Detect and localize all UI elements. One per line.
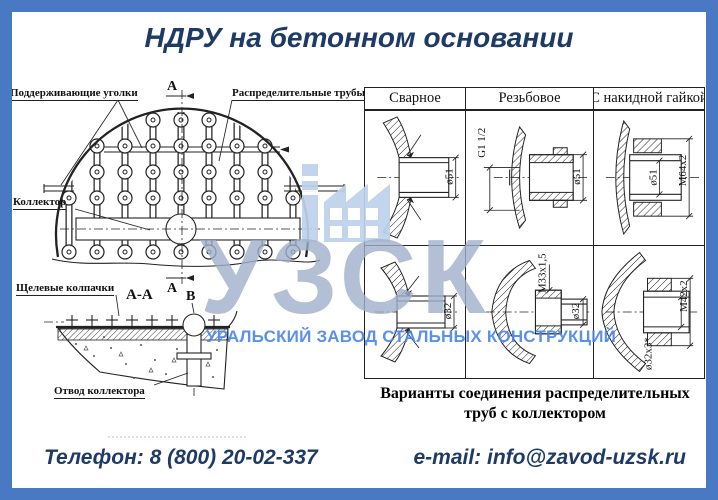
dim-label: M42x2	[678, 280, 690, 311]
union-nut-connection-sketch: ø32x3* M42x2	[594, 246, 704, 378]
base-break-line	[52, 259, 320, 266]
catalog-page: НДРУ на бетонном основании	[0, 0, 718, 500]
phone-number: Телефон: 8 (800) 20-02-337	[44, 446, 318, 470]
threaded-connection-sketch: M33x1,5 ø32	[466, 246, 593, 378]
detail-marker-b: В	[186, 289, 195, 305]
table-header-welded: Сварное	[365, 88, 465, 111]
label-collector-outlet: Отвод коллектора	[54, 385, 145, 399]
dim-label: G1 1/2	[476, 128, 488, 158]
label-supporting-angles: Поддерживающие уголки	[10, 87, 138, 101]
dim-label: ø51	[647, 169, 659, 185]
label-distribution-pipes: Распределительные трубы	[232, 87, 365, 101]
assembly-drawing	[14, 82, 354, 427]
section-marker-a-top: А	[167, 79, 177, 95]
welded-connection-sketch: ø51	[365, 111, 465, 245]
cell-threaded-51: G1 1/2 ø51	[465, 111, 593, 246]
table-caption: Варианты соединения распределительных тр…	[366, 384, 704, 424]
dim-label: ø32	[570, 303, 582, 319]
label-slot-caps: Щелевые колпачки	[16, 282, 114, 296]
table-header-threaded: Резьбовое	[465, 88, 593, 111]
dim-label: ø32x3*	[642, 337, 654, 370]
faint-line-artifact	[108, 436, 246, 438]
dim-label: M64x2	[677, 155, 689, 186]
dim-label: ø51	[444, 168, 456, 184]
cell-welded-32: ø32	[365, 246, 465, 378]
section-aa-title: А-А	[126, 287, 153, 304]
union-nut-connection-sketch: ø51 M64x2	[594, 111, 704, 245]
email-address: e-mail: info@zavod-uzsk.ru	[413, 446, 686, 470]
dim-label: ø51	[571, 168, 583, 184]
dim-label: M33x1,5	[536, 253, 548, 293]
section-aa-drawing	[44, 295, 237, 396]
contacts-footer: Телефон: 8 (800) 20-02-337 e-mail: info@…	[44, 446, 686, 470]
table-header-union-nut: С накидной гайкой	[593, 88, 704, 111]
threaded-connection-sketch: G1 1/2 ø51	[466, 111, 593, 245]
connections-table: Сварное Резьбовое С накидной гайкой ø51	[364, 87, 705, 379]
dim-label: ø32	[442, 303, 454, 320]
dome-plan-drawing	[44, 90, 344, 284]
label-collector: Коллектор	[13, 196, 66, 210]
welded-connection-sketch: ø32	[365, 246, 465, 378]
cell-welded-51: ø51	[365, 111, 465, 246]
page-title: НДРУ на бетонном основании	[0, 22, 718, 54]
cell-threaded-32: M33x1,5 ø32	[465, 246, 593, 378]
section-marker-a-bottom: А	[167, 281, 177, 297]
cell-union-nut-32: ø32x3* M42x2	[593, 246, 704, 378]
cell-union-nut-51: ø51 M64x2	[593, 111, 704, 246]
